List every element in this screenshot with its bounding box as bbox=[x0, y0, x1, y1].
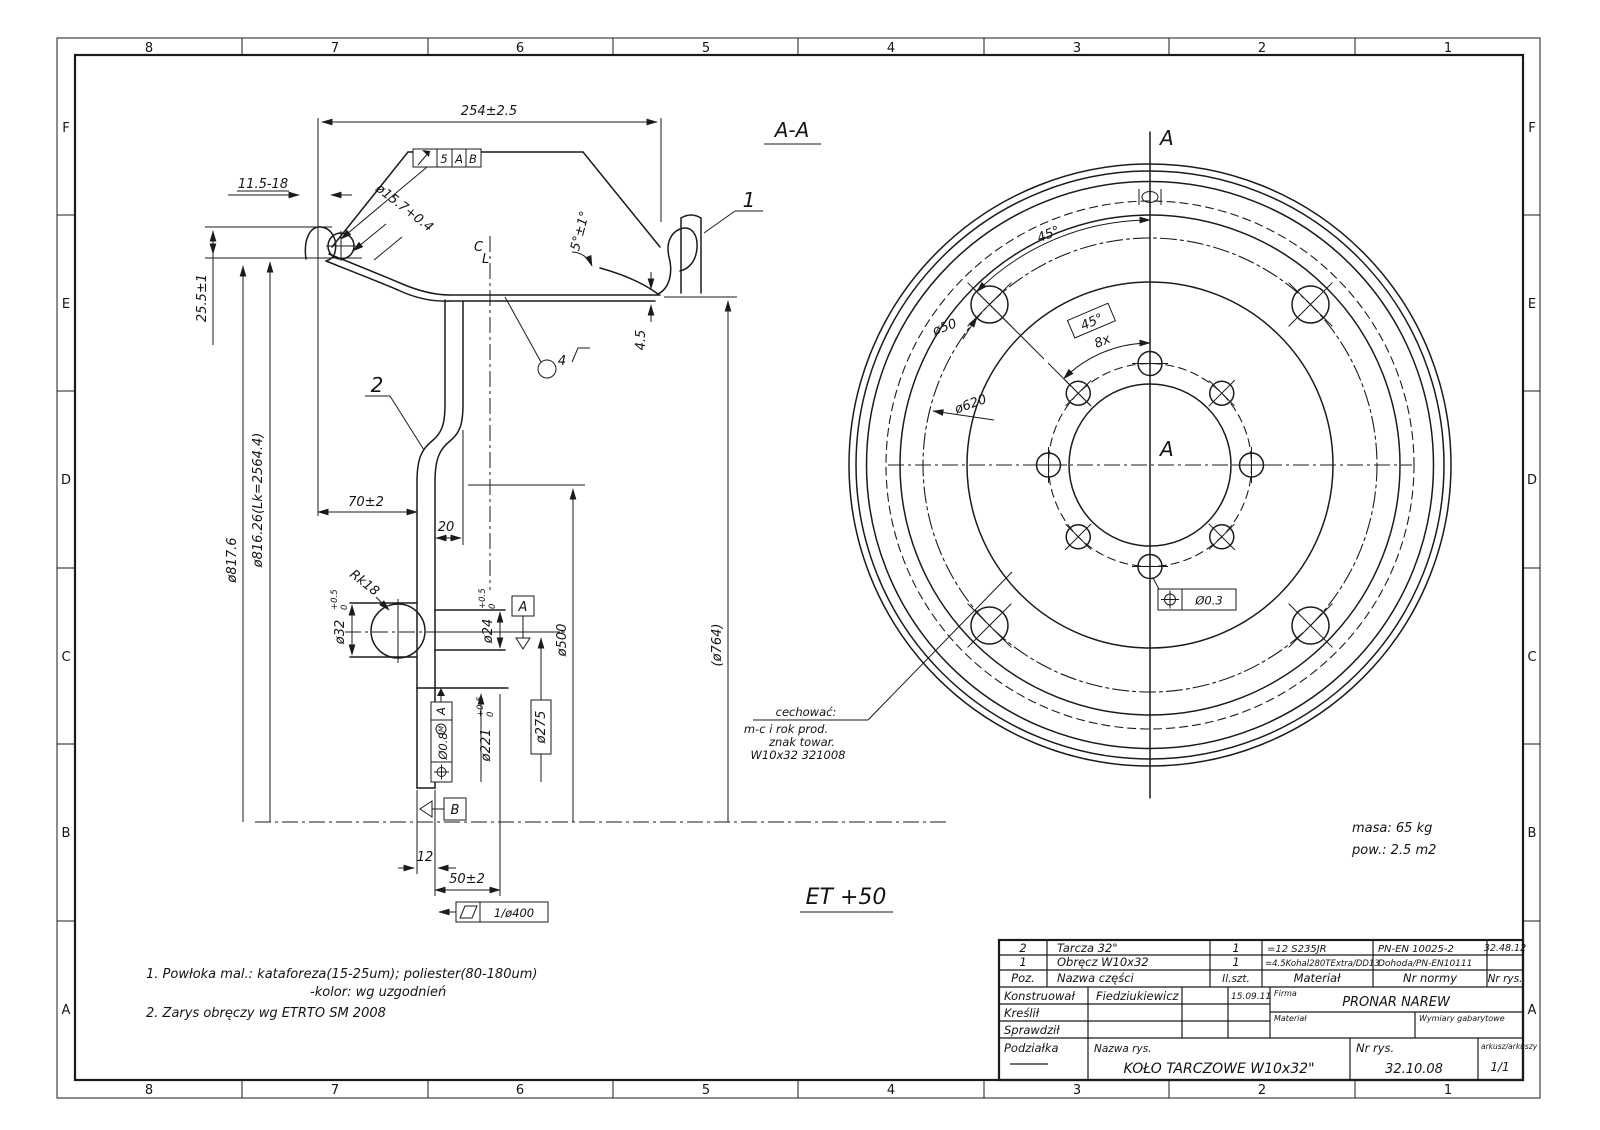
zone-row: C bbox=[1527, 650, 1536, 665]
firm-name: PRONAR NAREW bbox=[1342, 995, 1451, 1010]
dim-text: 11.5-18 bbox=[238, 177, 288, 192]
dim-seat-dia: ø500 bbox=[555, 489, 573, 822]
dim-rim-width: 254±2.5 bbox=[322, 104, 657, 122]
dim-text: Rk18 bbox=[346, 567, 381, 599]
firm-block: Firma PRONAR NAREW Materiał Wymiary gaba… bbox=[1274, 989, 1505, 1023]
dim-flange-width: 11.5-18 bbox=[228, 177, 352, 195]
role-drawn: Kreślił bbox=[1004, 1006, 1040, 1020]
callout-disc: 2 bbox=[365, 373, 424, 450]
centerline-symbol: L bbox=[482, 252, 489, 267]
zone-row: A bbox=[1528, 1003, 1537, 1018]
dim-text: 70±2 bbox=[348, 495, 384, 510]
zone-row: F bbox=[1528, 121, 1535, 136]
zone-col: 5 bbox=[702, 41, 710, 56]
dim-text: 45° bbox=[1035, 223, 1062, 246]
dim-text: ø24 bbox=[481, 619, 496, 645]
dim-tol: 0 bbox=[340, 605, 350, 610]
title-row: Podziałka Nazwa rys. KOŁO TARCZOWE W10x3… bbox=[1004, 1041, 1538, 1077]
dim-ref-dia: (ø764) bbox=[710, 301, 728, 822]
section-view: A-A C L bbox=[195, 104, 950, 922]
part-material: =12 S235JR bbox=[1267, 944, 1327, 955]
drawing-title: KOŁO TARCZOWE W10x32" bbox=[1123, 1061, 1314, 1077]
dim-seat-angle: 5°±1° bbox=[568, 210, 593, 266]
zone-col: 1 bbox=[1444, 1083, 1452, 1098]
surface-grade: 4 bbox=[558, 354, 566, 369]
position-value: Ø0.3 bbox=[1194, 594, 1222, 608]
dim-bead-dia: ø816.26(Lk=2564.4) bbox=[251, 262, 270, 822]
position-tolerance-frame-front: Ø0.3 bbox=[1153, 578, 1236, 610]
header-qty: Il.szt. bbox=[1222, 973, 1250, 985]
datum-b: B bbox=[420, 798, 466, 820]
dim-hole-outer: ø32 +0.5 0 bbox=[330, 589, 352, 655]
part-drawing-no: 32.48.12 bbox=[1484, 943, 1526, 954]
header-standard: Nr normy bbox=[1403, 971, 1457, 985]
notes: 1. Powłoka mal.: kataforeza(15-25um); po… bbox=[146, 967, 537, 1021]
centerlines bbox=[255, 236, 950, 822]
marking-line: cechować: bbox=[776, 705, 837, 719]
dim-text: ø32 bbox=[333, 620, 348, 646]
dim-hub-bore: ø221 +0.5 0 bbox=[476, 694, 496, 782]
front-view: A A 45° bbox=[744, 126, 1451, 798]
designer-name: Fiedziukiewicz bbox=[1096, 989, 1180, 1003]
zone-row: E bbox=[1528, 297, 1536, 312]
role-designed: Konstruował bbox=[1004, 989, 1075, 1003]
dim-count: 8x bbox=[1092, 332, 1113, 352]
dim-hub-offset: 50±2 bbox=[435, 872, 500, 890]
offset-text: ET +50 bbox=[806, 885, 887, 910]
zone-col: 7 bbox=[331, 1083, 339, 1098]
header-name: Nazwa części bbox=[1057, 971, 1135, 985]
zone-row: D bbox=[1527, 473, 1537, 488]
dim-rim-od: ø817.6 bbox=[225, 266, 243, 822]
dim-tol: +0.5 bbox=[476, 696, 486, 717]
zone-col: 3 bbox=[1073, 41, 1081, 56]
zone-col: 1 bbox=[1444, 41, 1452, 56]
title-label: Nazwa rys. bbox=[1094, 1043, 1152, 1055]
dim-gutter-dia: ø15.7+0.4 bbox=[353, 181, 436, 260]
header-material: Materiał bbox=[1294, 971, 1342, 985]
dim-bolt-angle: 45° 8x bbox=[1048, 303, 1150, 405]
dim-text: 254±2.5 bbox=[461, 104, 517, 119]
callout-rim: 1 bbox=[704, 188, 763, 233]
dim-text: 4.5 bbox=[634, 330, 649, 351]
datum-label: A bbox=[518, 600, 528, 615]
callout-text: 1 bbox=[743, 188, 756, 212]
zone-col: 4 bbox=[887, 1083, 895, 1098]
zone-col: 3 bbox=[1073, 1083, 1081, 1098]
dim-flange-height: 25.5±1 bbox=[195, 231, 213, 345]
datum-a: A bbox=[512, 596, 534, 649]
dim-tol: 0 bbox=[486, 712, 496, 717]
weld-ref-b: B bbox=[469, 152, 477, 166]
dim-text: 5°±1° bbox=[568, 210, 593, 253]
dim-text: 25.5±1 bbox=[195, 274, 210, 322]
area-text: pow.: 2.5 m2 bbox=[1351, 843, 1436, 858]
drawing-number: 32.10.08 bbox=[1385, 1062, 1443, 1077]
position-tolerance-frame: A Ø0.8 M bbox=[431, 688, 452, 782]
header-poz: Poz. bbox=[1011, 971, 1035, 985]
zone-col: 2 bbox=[1258, 41, 1266, 56]
datum-label: B bbox=[451, 803, 460, 818]
dim-text: ø221 bbox=[479, 729, 494, 763]
dim-tol: 0 bbox=[488, 604, 498, 609]
zone-col: 2 bbox=[1258, 1083, 1266, 1098]
number-label: Nr rys. bbox=[1356, 1041, 1394, 1055]
dim-vent-offset: 20 bbox=[436, 520, 461, 538]
parts-table: 2 Tarcza 32" 1 =12 S235JR PN-EN 10025-2 … bbox=[1011, 941, 1526, 985]
dim-hole-inner: ø24 +0.5 0 bbox=[478, 588, 500, 648]
section-arrow-label: A bbox=[1158, 437, 1174, 461]
zone-row: C bbox=[61, 650, 70, 665]
flatness-tolerance-frame: 1/ø400 bbox=[439, 902, 548, 922]
material-label: Materiał bbox=[1274, 1014, 1307, 1023]
datum-triangle-icon bbox=[516, 638, 530, 649]
part-standard: PN-EN 10025-2 bbox=[1378, 944, 1454, 955]
dim-vent-dia: ø50 bbox=[930, 316, 977, 339]
dim-text: ø817.6 bbox=[225, 537, 240, 583]
sheet-label: arkusz/arkuszy bbox=[1481, 1042, 1538, 1051]
zone-row: D bbox=[61, 473, 71, 488]
note-1b: -kolor: wg uzgodnień bbox=[310, 985, 446, 1000]
marking-line: znak towar. bbox=[768, 735, 835, 749]
datum-ref: A bbox=[434, 707, 448, 716]
dim-text: ø275 bbox=[534, 711, 549, 745]
position-value: Ø0.8 bbox=[436, 732, 450, 760]
part-name: Tarcza 32" bbox=[1057, 941, 1118, 955]
zone-col: 8 bbox=[145, 41, 153, 56]
dim-text: ø500 bbox=[555, 624, 570, 658]
zone-col: 5 bbox=[702, 1083, 710, 1098]
dim-vent-circle: ø620 bbox=[933, 392, 994, 420]
part-qty: 1 bbox=[1232, 955, 1239, 969]
dim-text: ø15.7+0.4 bbox=[372, 181, 436, 236]
dim-text: 50±2 bbox=[449, 872, 485, 887]
datum-triangle-icon bbox=[420, 801, 432, 817]
drawing-sheet: 8 7 6 5 4 3 2 1 8 7 6 5 4 3 2 1 F E D C … bbox=[0, 0, 1600, 1130]
callout-text: 2 bbox=[371, 373, 384, 397]
part-name: Obręcz W10x32 bbox=[1057, 955, 1149, 969]
dim-tol: +0.5 bbox=[478, 588, 488, 609]
zone-row: A bbox=[62, 1003, 71, 1018]
roughness-symbol-icon bbox=[572, 348, 590, 362]
header-drawing-no: Nr rys. bbox=[1488, 973, 1523, 985]
zone-col: 4 bbox=[887, 41, 895, 56]
part-qty: 1 bbox=[1232, 941, 1239, 955]
note-2: 2. Zarys obręczy wg ETRTO SM 2008 bbox=[146, 1006, 386, 1021]
annotations: masa: 65 kg pow.: 2.5 m2 ET +50 bbox=[800, 821, 1436, 912]
zone-col: 8 bbox=[145, 1083, 153, 1098]
dim-text: ø620 bbox=[952, 392, 989, 418]
dim-text: ø816.26(Lk=2564.4) bbox=[251, 433, 266, 569]
role-checked: Sprawdził bbox=[1004, 1023, 1060, 1037]
zone-row: F bbox=[62, 121, 69, 136]
title-block: 2 Tarcza 32" 1 =12 S235JR PN-EN 10025-2 … bbox=[999, 940, 1538, 1080]
dim-disc-thk: 12 bbox=[398, 850, 456, 868]
weld-symbol: 5 A B bbox=[341, 149, 481, 239]
part-poz: 1 bbox=[1019, 955, 1026, 969]
dim-text: ø50 bbox=[930, 316, 959, 339]
personnel: Konstruował Fiedziukiewicz 15.09.11 Kreś… bbox=[1004, 989, 1271, 1037]
extension-lines bbox=[205, 118, 737, 896]
weld-size: 5 bbox=[440, 152, 447, 166]
sheet-count: 1/1 bbox=[1490, 1060, 1509, 1074]
rim-profile bbox=[305, 152, 701, 301]
mass-text: masa: 65 kg bbox=[1352, 821, 1432, 836]
flatness-value: 1/ø400 bbox=[494, 906, 534, 920]
firm-label: Firma bbox=[1274, 989, 1297, 998]
zone-col: 6 bbox=[516, 1083, 524, 1098]
marking-line: W10x32 321008 bbox=[751, 748, 846, 762]
zone-col: 7 bbox=[331, 41, 339, 56]
dim-tol: +0.5 bbox=[330, 589, 340, 610]
part-standard: Dohoda/PN-EN10111 bbox=[1378, 959, 1472, 969]
zone-row: E bbox=[62, 297, 70, 312]
svg-text:M: M bbox=[438, 726, 446, 732]
dimensions-label: Wymiary gabarytowe bbox=[1419, 1014, 1505, 1023]
surface-mark: 4 bbox=[505, 297, 590, 378]
rim-gutter-cross bbox=[326, 231, 356, 261]
note-1: 1. Powłoka mal.: kataforeza(15-25um); po… bbox=[146, 967, 537, 982]
zone-col: 6 bbox=[516, 41, 524, 56]
section-title: A-A bbox=[773, 118, 810, 142]
part-poz: 2 bbox=[1019, 941, 1026, 955]
dim-disc-offset: 70±2 bbox=[318, 495, 417, 512]
dim-text: 20 bbox=[438, 520, 455, 535]
marking-note: cechować: m-c i rok prod. znak towar. W1… bbox=[744, 572, 1012, 762]
weld-ref-a: A bbox=[454, 152, 463, 166]
zone-row: B bbox=[62, 826, 71, 841]
scale-label: Podziałka bbox=[1004, 1041, 1059, 1055]
dim-bolt-circle: ø275 bbox=[531, 638, 551, 782]
section-arrow-label: A bbox=[1158, 126, 1174, 150]
date: 15.09.11 bbox=[1231, 992, 1271, 1002]
zone-row: B bbox=[1528, 826, 1537, 841]
marking-line: m-c i rok prod. bbox=[744, 722, 828, 736]
dim-text: (ø764) bbox=[710, 624, 725, 667]
dim-text: 12 bbox=[417, 850, 434, 865]
part-material: =4.5Kohal280TExtra/DD13 bbox=[1265, 959, 1380, 969]
